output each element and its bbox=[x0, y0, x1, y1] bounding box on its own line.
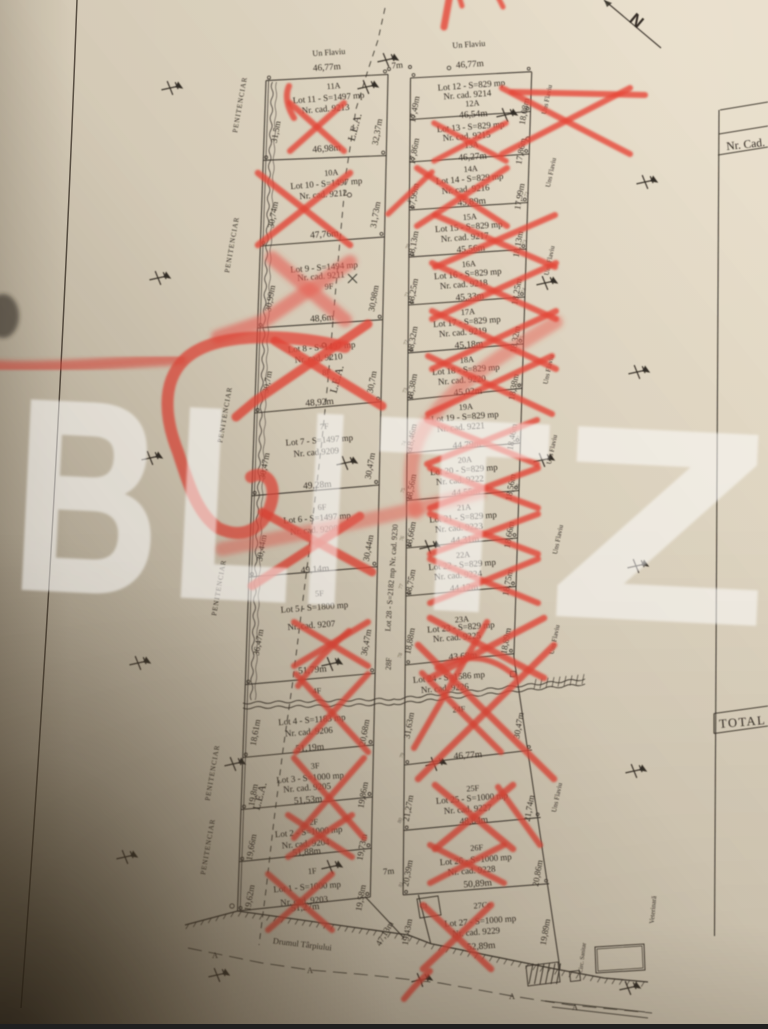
svg-text:Z: Z bbox=[546, 370, 768, 681]
svg-text:L: L bbox=[167, 352, 302, 659]
svg-text:T: T bbox=[369, 361, 553, 670]
svg-text:B: B bbox=[7, 343, 167, 651]
